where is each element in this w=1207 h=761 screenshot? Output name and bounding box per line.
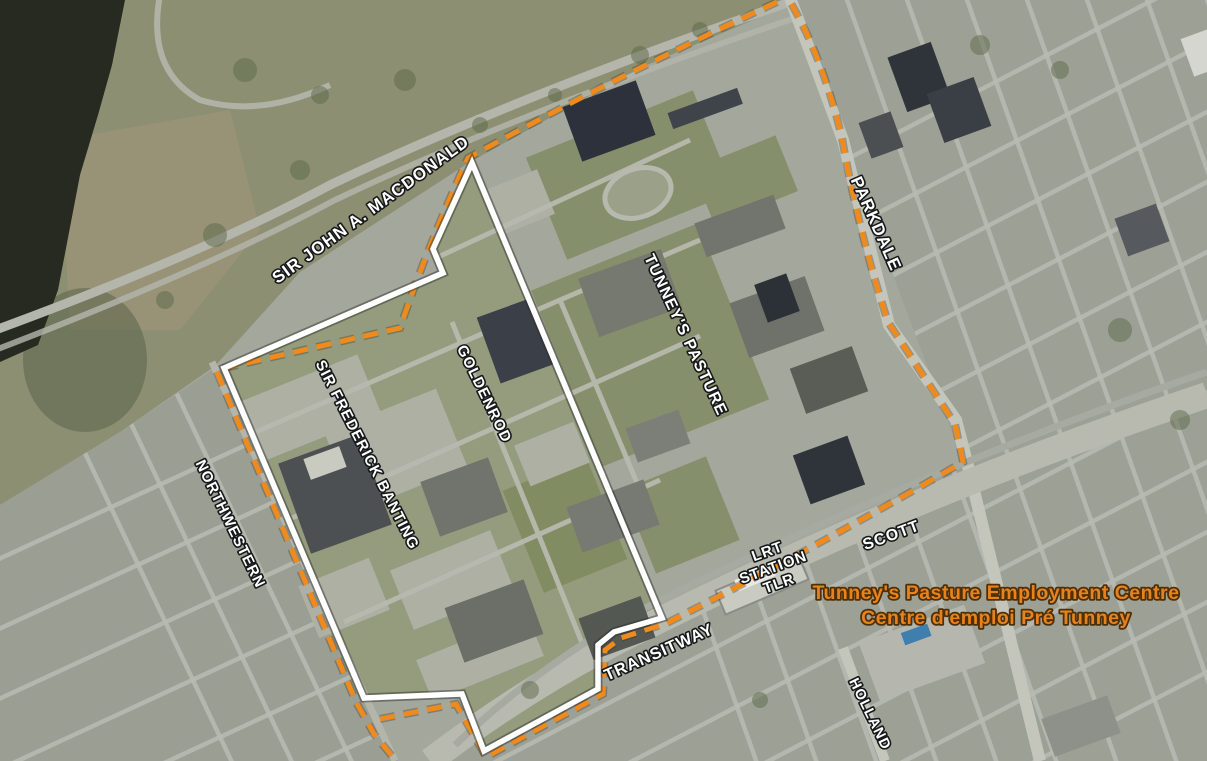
map-title-line1: Tunney's Pasture Employment Centre: [813, 582, 1180, 604]
map-title-line2: Centre d'emploi Pré Tunney: [861, 607, 1131, 629]
map-canvas: SIR JOHN A. MACDONALD PARKDALE TUNNEY'S …: [0, 0, 1207, 761]
aerial-map: SIR JOHN A. MACDONALD PARKDALE TUNNEY'S …: [0, 0, 1207, 761]
